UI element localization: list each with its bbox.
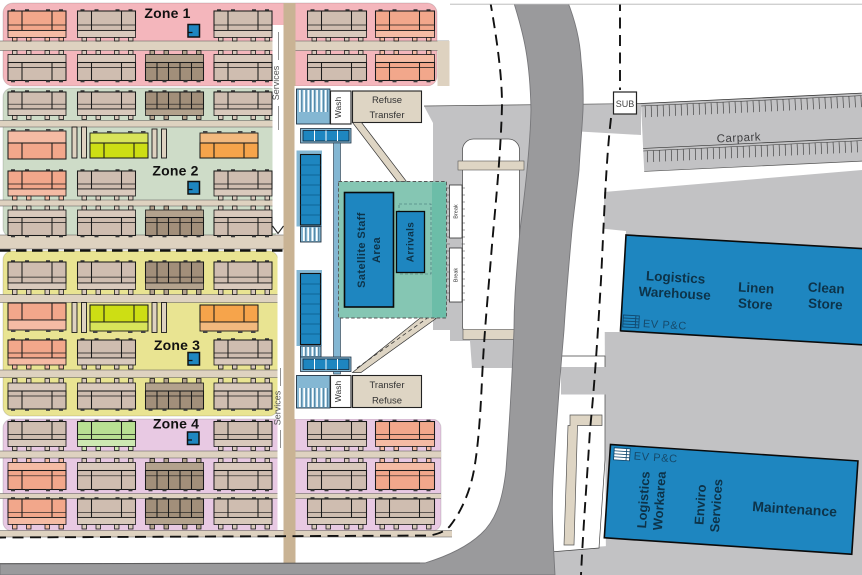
svg-text:Services: Services (271, 65, 281, 100)
svg-text:Store: Store (808, 296, 844, 313)
svg-text:Zone 3: Zone 3 (154, 337, 200, 353)
svg-text:Clean: Clean (807, 280, 845, 297)
svg-text:EV P&C: EV P&C (643, 318, 688, 333)
svg-text:Break: Break (454, 268, 460, 283)
svg-text:SUB: SUB (616, 99, 635, 109)
svg-text:Zone 4: Zone 4 (153, 416, 199, 432)
svg-text:Wash: Wash (333, 97, 343, 119)
svg-text:Services: Services (273, 390, 283, 425)
svg-text:Enviro: Enviro (691, 484, 709, 525)
svg-text:Satellite Staff: Satellite Staff (356, 212, 368, 288)
svg-text:Zone 1: Zone 1 (144, 5, 190, 21)
svg-text:Transfer: Transfer (369, 110, 404, 121)
svg-text:Arrivals: Arrivals (406, 222, 417, 262)
svg-text:Break: Break (454, 204, 460, 219)
svg-text:Refuse: Refuse (372, 396, 402, 407)
svg-text:Wash: Wash (333, 381, 343, 403)
svg-text:Zone 2: Zone 2 (152, 163, 198, 179)
svg-text:Area: Area (371, 236, 383, 263)
svg-text:Transfer: Transfer (369, 380, 404, 391)
svg-text:Linen: Linen (738, 280, 775, 297)
svg-text:Store: Store (738, 296, 774, 313)
svg-text:Carpark: Carpark (716, 131, 761, 145)
svg-text:Refuse: Refuse (372, 95, 402, 106)
